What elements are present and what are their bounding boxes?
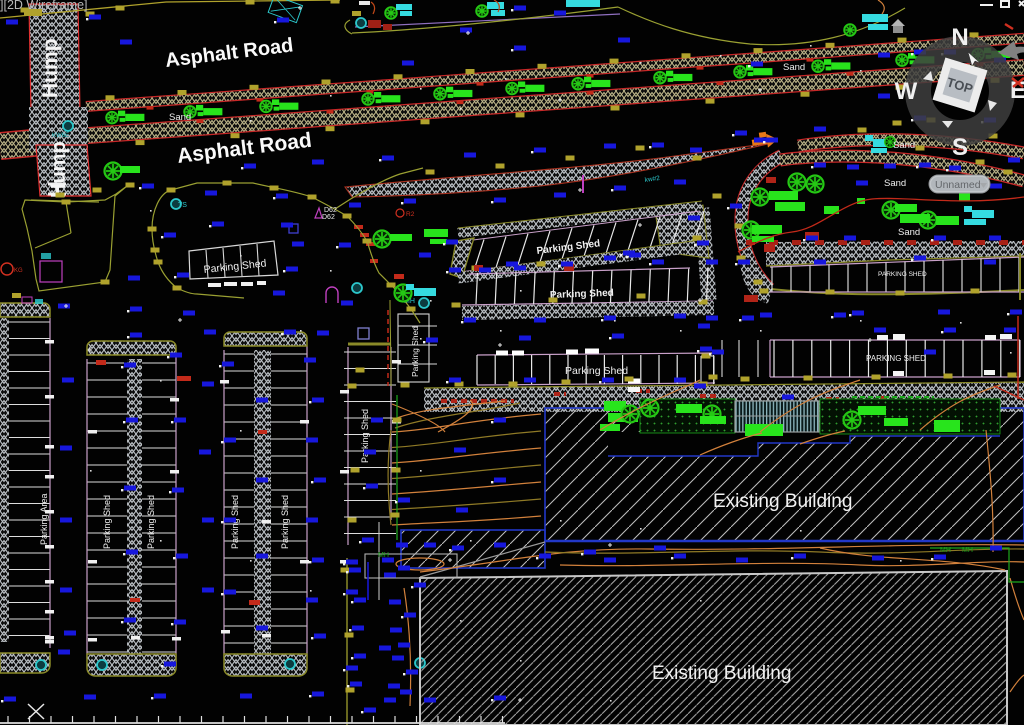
svg-text:Parking Shed: Parking Shed <box>550 288 614 301</box>
svg-text:Parking Shed: Parking Shed <box>102 495 112 549</box>
svg-text:S: S <box>952 134 968 161</box>
svg-text:Parking Shed: Parking Shed <box>565 365 628 377</box>
svg-text:TS: TS <box>178 202 187 209</box>
svg-text:D62: D62 <box>322 214 335 221</box>
svg-text:Sand: Sand <box>783 62 805 73</box>
svg-text:KW6E: KW6E <box>52 133 69 139</box>
svg-text:KG: KG <box>14 268 23 274</box>
svg-text:Parking Shed: Parking Shed <box>146 495 156 549</box>
svg-text:Existing Building: Existing Building <box>652 663 791 684</box>
svg-text:Sand: Sand <box>884 178 906 189</box>
svg-text:][2D Wireframe]: ][2D Wireframe] <box>0 0 88 12</box>
svg-text:Hump: Hump <box>48 141 70 198</box>
svg-text:Sand: Sand <box>893 140 915 151</box>
svg-text:Unnamed: Unnamed <box>935 179 981 191</box>
svg-text:Parking Shed: Parking Shed <box>280 495 290 549</box>
svg-text:N: N <box>951 24 968 51</box>
svg-text:W: W <box>895 78 918 105</box>
svg-text:Existing Building: Existing Building <box>713 491 852 512</box>
svg-text:PARKING SHED: PARKING SHED <box>878 271 927 278</box>
svg-text:D62: D62 <box>324 207 337 214</box>
svg-text:Parking Shed: Parking Shed <box>360 409 370 463</box>
svg-text:R2: R2 <box>406 211 415 218</box>
svg-text:Sand: Sand <box>898 227 920 238</box>
svg-text:Sand: Sand <box>169 112 191 123</box>
svg-text:Hump: Hump <box>39 39 62 99</box>
svg-text:PARKING SHED: PARKING SHED <box>866 354 926 363</box>
svg-text:Parking Shed: Parking Shed <box>410 326 420 377</box>
svg-text:Parking Area: Parking Area <box>39 493 49 545</box>
